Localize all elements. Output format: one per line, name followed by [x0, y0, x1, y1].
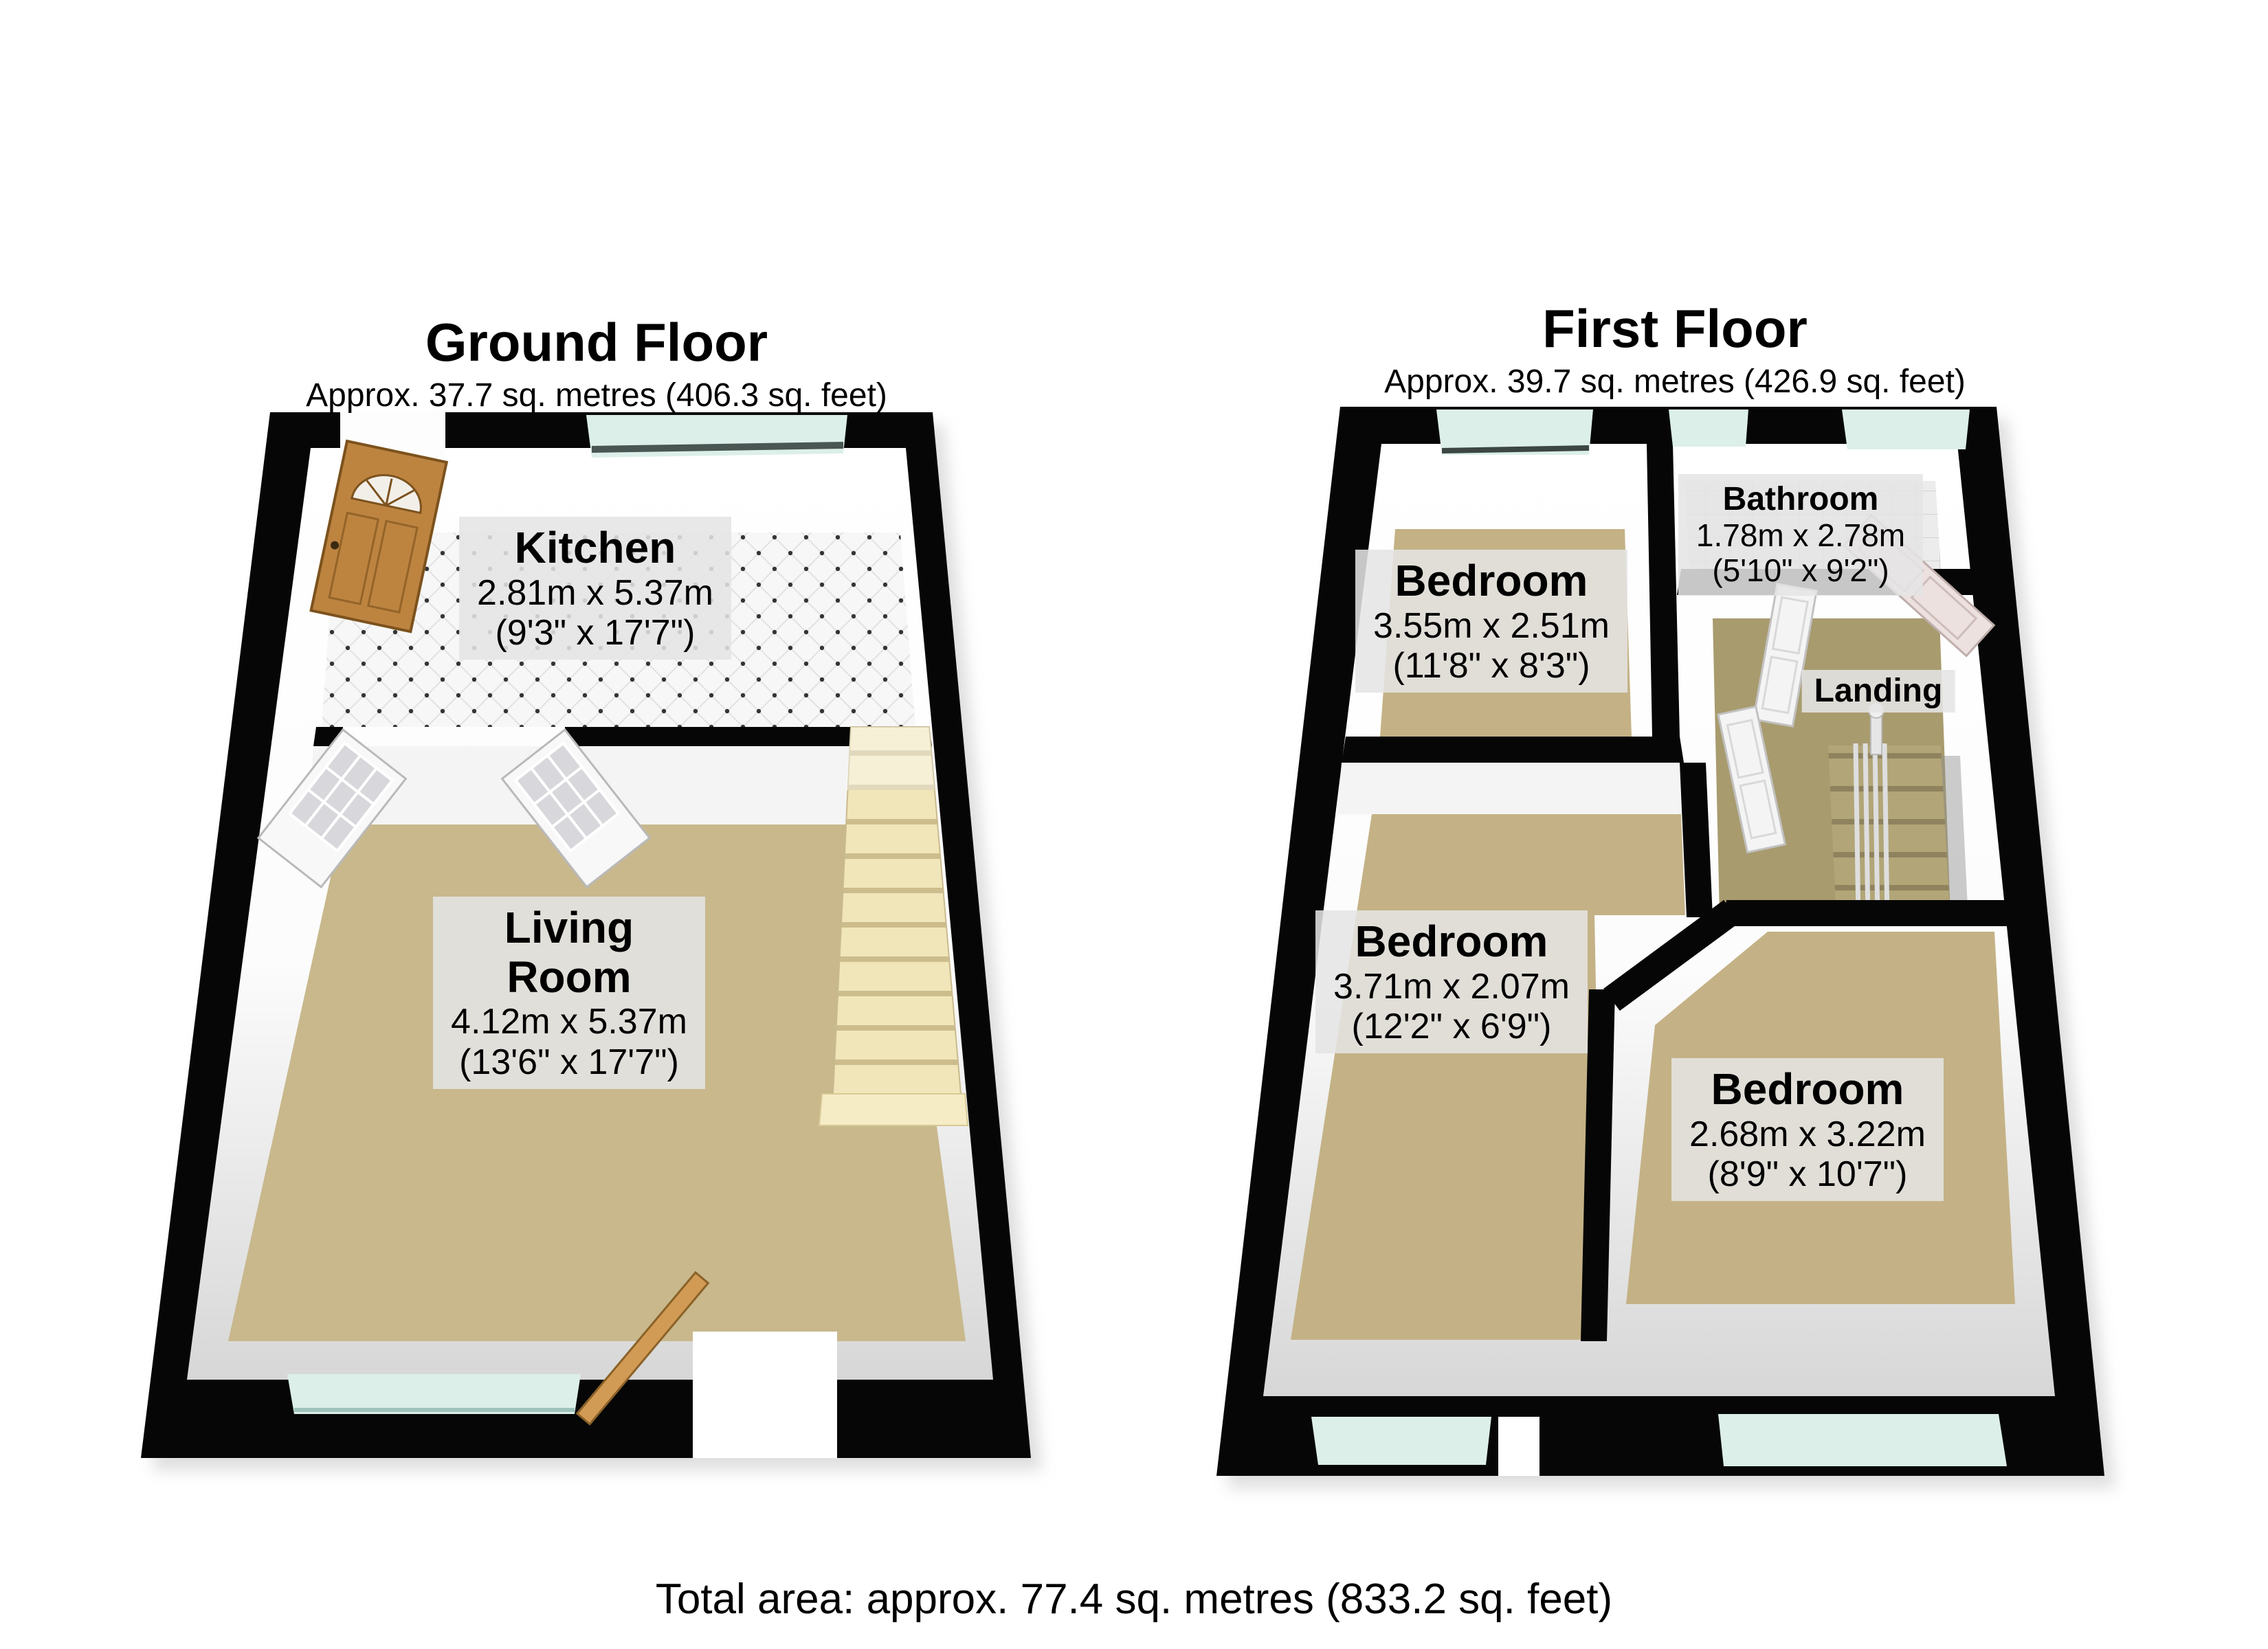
- living-room-window: [287, 1374, 581, 1414]
- wall-bed1-bed2-face: [1337, 763, 1688, 814]
- bedroom2-dims-imperial: (12'2" x 6'9"): [1333, 1007, 1570, 1046]
- first-floor-bottom-gap: [1498, 1417, 1539, 1476]
- bathroom-window-right: [1842, 410, 1970, 449]
- bathroom-dims-imperial: (5'10" x 9'2"): [1696, 553, 1905, 589]
- ground-floor-title: Ground Floor: [306, 315, 887, 371]
- bedroom2-window: [1311, 1417, 1491, 1465]
- bathroom-name: Bathroom: [1696, 481, 1905, 518]
- stair-bottom-step: [819, 1094, 968, 1125]
- wall-bed1-bed2: [1342, 737, 1684, 763]
- room-label-landing: Landing: [1802, 670, 1955, 713]
- bedroom1-dims-metric: 3.55m x 2.51m: [1373, 606, 1610, 646]
- living-room-dims-metric: 4.12m x 5.37m: [451, 1002, 687, 1042]
- rear-door-opening: [693, 1332, 837, 1458]
- kitchen-name: Kitchen: [477, 524, 713, 573]
- room-label-bathroom: Bathroom 1.78m x 2.78m (5'10" x 9'2"): [1678, 474, 1923, 596]
- landing-name: Landing: [1814, 673, 1943, 710]
- room-label-bedroom1: Bedroom 3.55m x 2.51m (11'8" x 8'3"): [1355, 550, 1627, 693]
- bedroom3-name: Bedroom: [1689, 1065, 1926, 1114]
- ground-floor-header: Ground Floor Approx. 37.7 sq. metres (40…: [306, 315, 887, 414]
- first-floor-subtitle: Approx. 39.7 sq. metres (426.9 sq. feet): [1384, 363, 1966, 401]
- total-area-text: Total area: approx. 77.4 sq. metres (833…: [656, 1575, 1612, 1624]
- bedroom1-dims-imperial: (11'8" x 8'3"): [1373, 646, 1610, 686]
- living-room-name: Living Room: [451, 904, 687, 1002]
- bedroom3-dims-imperial: (8'9" x 10'7"): [1689, 1154, 1926, 1194]
- ground-floor-subtitle: Approx. 37.7 sq. metres (406.3 sq. feet): [306, 377, 887, 414]
- room-label-bedroom2: Bedroom 3.71m x 2.07m (12'2" x 6'9"): [1315, 910, 1588, 1053]
- floorplan-canvas: [0, 0, 2268, 1649]
- bedroom3-dims-metric: 2.68m x 3.22m: [1689, 1114, 1926, 1154]
- room-label-bedroom3: Bedroom 2.68m x 3.22m (8'9" x 10'7"): [1671, 1058, 1944, 1201]
- bedroom2-dims-metric: 3.71m x 2.07m: [1333, 967, 1570, 1007]
- bathroom-window-left: [1669, 410, 1748, 447]
- kitchen-window: [586, 415, 847, 458]
- wall-bed3-top: [1722, 900, 2010, 926]
- bedroom2-name: Bedroom: [1333, 917, 1570, 967]
- bathroom-dims-metric: 1.78m x 2.78m: [1696, 518, 1905, 554]
- living-room-dims-imperial: (13'6" x 17'7"): [451, 1042, 687, 1082]
- room-label-living-room: Living Room 4.12m x 5.37m (13'6" x 17'7"…: [433, 897, 705, 1089]
- bedroom3-window: [1718, 1414, 2007, 1466]
- room-label-kitchen: Kitchen 2.81m x 5.37m (9'3" x 17'7"): [459, 517, 731, 660]
- first-floor-header: First Floor Approx. 39.7 sq. metres (426…: [1384, 301, 1966, 401]
- bedroom1-name: Bedroom: [1373, 557, 1610, 606]
- kitchen-dims-imperial: (9'3" x 17'7"): [477, 613, 713, 653]
- kitchen-dims-metric: 2.81m x 5.37m: [477, 573, 713, 613]
- bedroom1-window: [1436, 410, 1593, 455]
- staircase-first: [1828, 745, 1968, 921]
- first-floor-title: First Floor: [1384, 301, 1966, 357]
